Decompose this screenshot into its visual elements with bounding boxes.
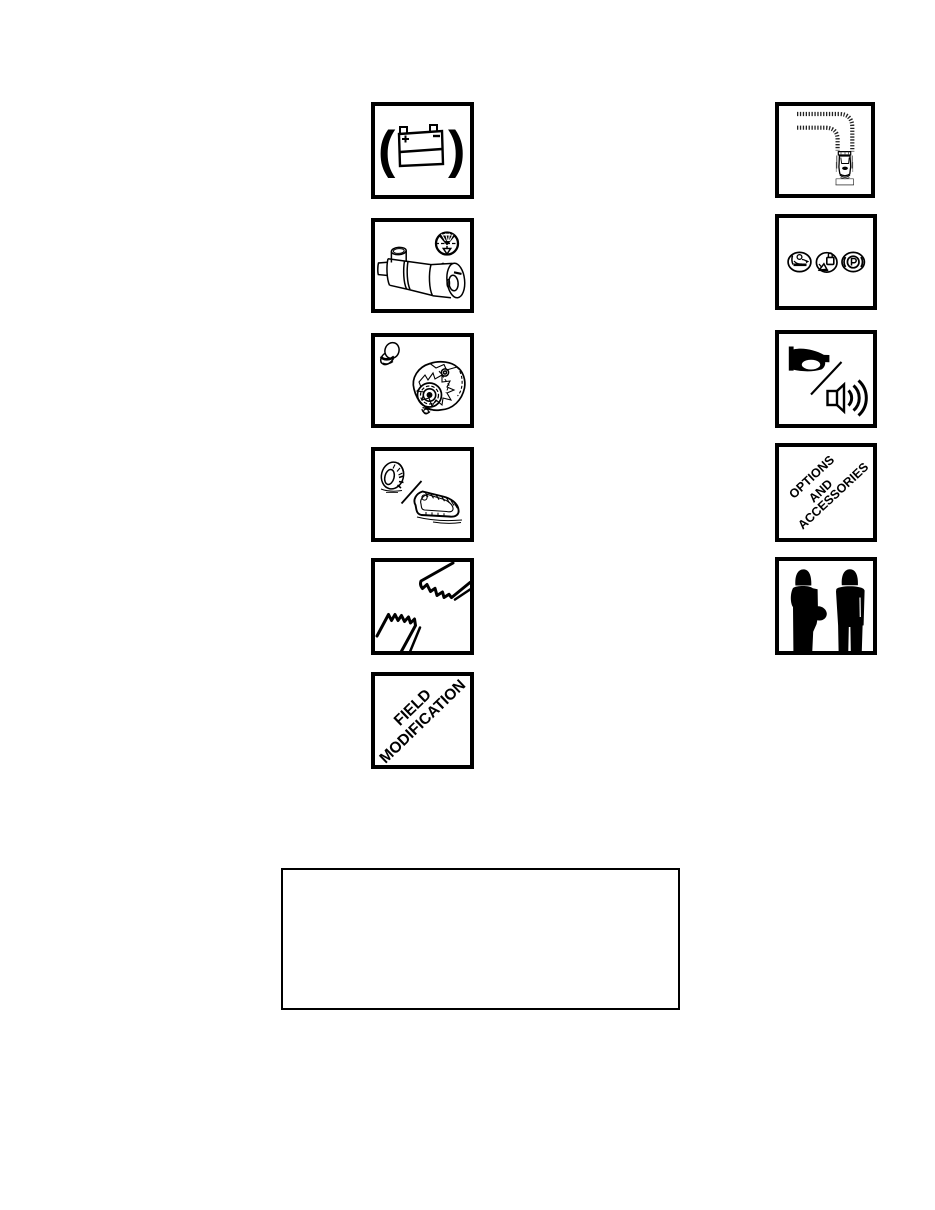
svg-text:): )	[448, 121, 465, 179]
svg-text:(: (	[378, 121, 396, 179]
